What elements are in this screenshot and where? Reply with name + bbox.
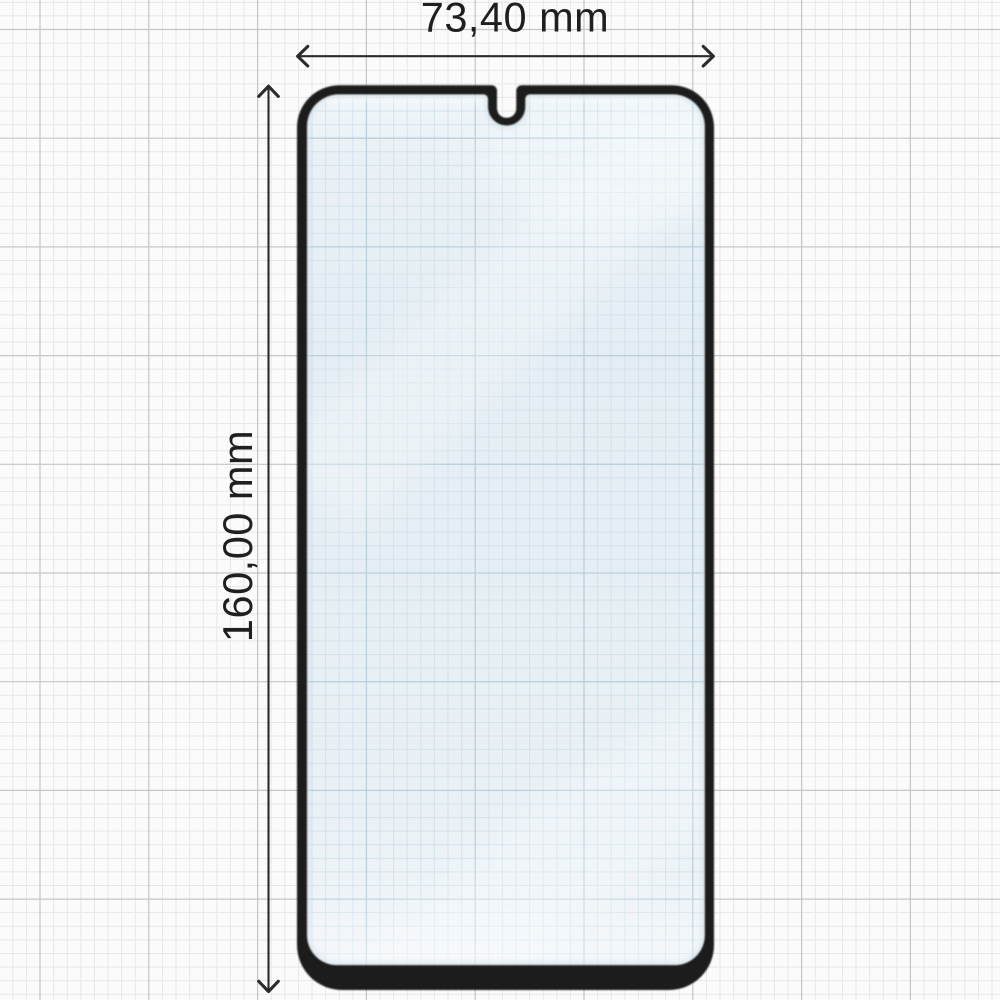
svg-text:160,00 mm: 160,00 mm [214, 430, 261, 642]
svg-text:73,40 mm: 73,40 mm [421, 0, 610, 41]
